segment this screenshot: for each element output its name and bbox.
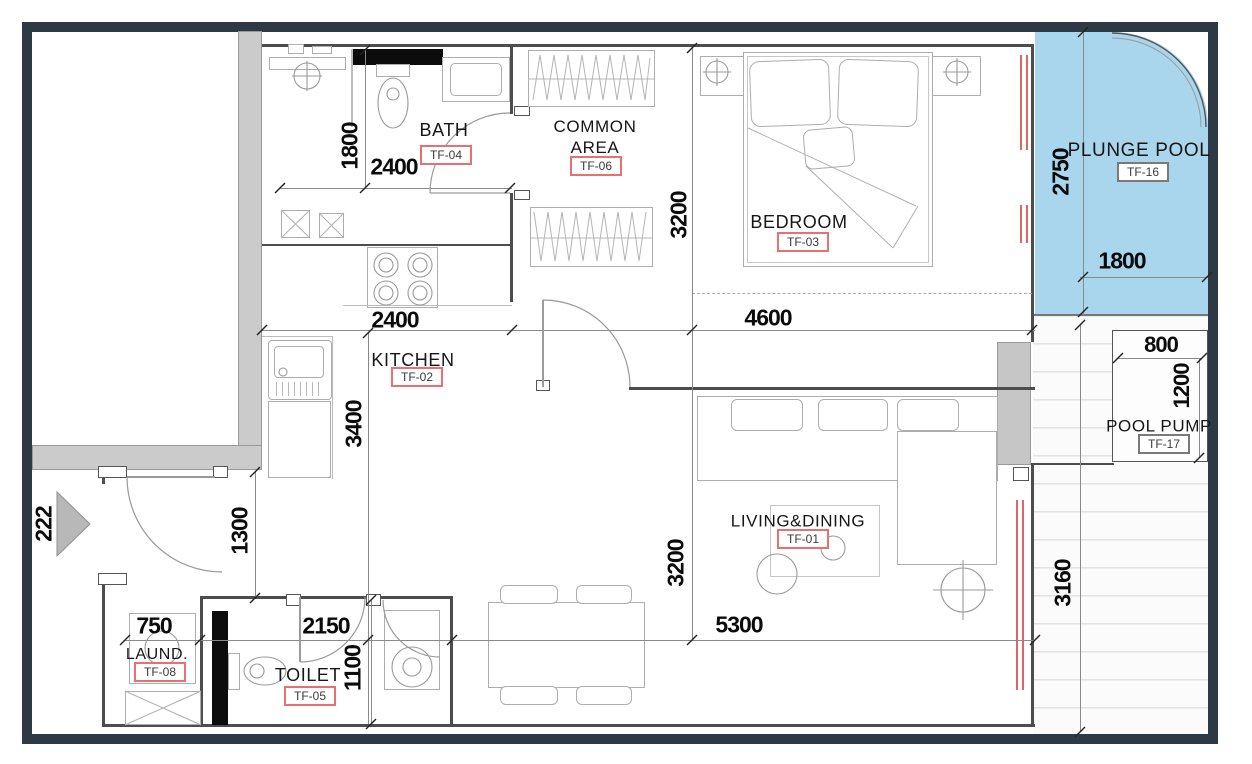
dimension-ticks — [120, 27, 1212, 737]
dim-entry-mark: 222 — [33, 506, 56, 541]
dim-pump-width: 800 — [1144, 334, 1178, 356]
room-label-bedroom: BEDROOM — [750, 211, 847, 234]
dim-toilet-width: 2150 — [302, 615, 349, 638]
room-tag-laundry: TF-08 — [134, 662, 186, 682]
room-label-bath: BATH — [419, 119, 468, 142]
dim-bath-height: 1800 — [339, 122, 362, 169]
room-label-common: COMMON AREA — [539, 116, 651, 159]
room-tag-toilet: TF-05 — [284, 686, 336, 706]
bedside-lamps — [703, 58, 971, 86]
dim-kitchen-width: 2400 — [371, 309, 418, 332]
room-tag-kitchen: TF-02 — [391, 367, 443, 387]
dim-common-height: 3200 — [668, 191, 691, 238]
bath-fixtures — [292, 61, 408, 128]
dim-kitchen-height: 3400 — [343, 400, 366, 447]
room-label-toilet: TOILET — [275, 664, 341, 687]
dim-entry-height: 1300 — [229, 507, 252, 554]
dim-pool-height: 2750 — [1050, 148, 1073, 195]
dim-living-height: 3200 — [665, 539, 688, 586]
door-arcs — [127, 113, 630, 662]
dim-bedroom-width: 4600 — [744, 307, 791, 330]
dim-terrace-height: 3160 — [1052, 559, 1075, 606]
room-label-pool: PLUNGE POOL — [1068, 139, 1211, 163]
dim-laundry-width: 750 — [136, 615, 171, 638]
room-tag-pump: TF-17 — [1138, 434, 1190, 454]
room-tag-living: TF-01 — [777, 529, 829, 549]
dim-pump-height: 1200 — [1171, 364, 1193, 409]
dim-living-width: 5300 — [715, 614, 762, 637]
entry-door-arc — [127, 477, 222, 572]
dim-bath-width: 2400 — [370, 156, 417, 179]
room-tag-common: TF-06 — [570, 156, 622, 176]
room-tag-pool: TF-16 — [1117, 162, 1169, 182]
kitchen-door-arc — [543, 300, 630, 387]
washer-door-arc — [383, 600, 440, 657]
room-tag-bedroom: TF-03 — [777, 232, 829, 252]
dim-toilet-height: 1100 — [342, 645, 365, 691]
entry-arrow-icon — [57, 492, 90, 556]
pool-corner-arcs — [1112, 33, 1206, 127]
dim-pool-width: 1800 — [1098, 250, 1145, 273]
room-tag-bath: TF-04 — [420, 145, 472, 165]
floor-plan-page: BATH COMMON AREA BEDROOM PLUNGE POOL KIT… — [0, 0, 1252, 764]
